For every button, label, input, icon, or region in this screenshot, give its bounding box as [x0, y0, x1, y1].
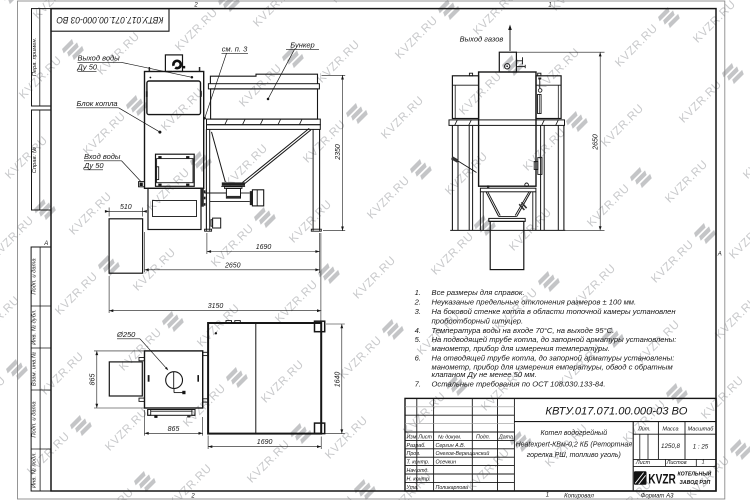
svg-text:Ду 50: Ду 50 [77, 63, 98, 72]
svg-text:Лит.: Лит. [637, 427, 651, 433]
svg-text:Т. контр.: Т. контр. [407, 460, 430, 466]
svg-text:2: 2 [193, 3, 198, 9]
svg-text:Все размеры для справок.: Все размеры для справок. [432, 288, 525, 297]
svg-text:горелка РШ, топливо уголь): горелка РШ, топливо уголь) [527, 452, 621, 459]
svg-text:2650: 2650 [593, 134, 600, 151]
svg-text:1250,8: 1250,8 [661, 443, 680, 450]
svg-text:3150: 3150 [208, 303, 224, 310]
svg-text:Лист: Лист [417, 434, 432, 440]
svg-text:КОТЕЛЬНЫЙ: КОТЕЛЬНЫЙ [678, 470, 712, 478]
svg-text:865: 865 [168, 426, 180, 433]
svg-text:510: 510 [120, 204, 132, 211]
svg-text:Пров.: Пров. [407, 451, 421, 457]
svg-text:Остальные требования по ОСТ 10: Остальные требования по ОСТ 108.030.133-… [432, 379, 606, 388]
svg-text:№ докум.: № докум. [438, 434, 461, 440]
svg-text:2350: 2350 [335, 144, 342, 161]
svg-text:Неуказаные предельные отклонен: Неуказаные предельные отклонения размеро… [432, 297, 637, 306]
svg-text:4.: 4. [415, 326, 421, 335]
svg-text:КВТУ.017.071.00.000-03 ВО: КВТУ.017.071.00.000-03 ВО [545, 406, 688, 418]
svg-text:7.: 7. [415, 379, 421, 388]
svg-text:1690: 1690 [257, 439, 273, 446]
svg-text:см. п. 3: см. п. 3 [222, 45, 248, 54]
svg-text:1: 1 [548, 3, 551, 9]
svg-text:6.: 6. [415, 353, 421, 362]
svg-text:Перв. примен.: Перв. примен. [32, 38, 38, 77]
svg-text:3.: 3. [415, 307, 421, 316]
svg-text:КВТУ.017.071.00.000-03 ВО: КВТУ.017.071.00.000-03 ВО [57, 15, 164, 25]
svg-text:Инв. № подл.: Инв. № подл. [32, 452, 38, 488]
svg-text:Ду 50: Ду 50 [83, 161, 104, 170]
svg-text:Температура воды на входе 70°С: Температура воды на входе 70°С, на выход… [432, 326, 615, 335]
svg-text:Разраб.: Разраб. [407, 443, 426, 449]
svg-text:Утв.: Утв. [407, 485, 419, 491]
svg-text:А: А [43, 241, 48, 247]
svg-text:KVZR: KVZR [648, 471, 676, 486]
svg-text:Формат А3: Формат А3 [641, 494, 674, 500]
svg-text:Масса: Масса [662, 427, 678, 433]
svg-text:Н. контр.: Н. контр. [407, 476, 431, 482]
svg-text:Масштаб: Масштаб [688, 427, 715, 433]
svg-text:1.: 1. [415, 288, 421, 297]
svg-text:Котел водогрейный: Котел водогрейный [541, 429, 608, 437]
svg-text:Выход газов: Выход газов [460, 35, 504, 44]
svg-text:Нач.отд.: Нач.отд. [407, 468, 429, 474]
svg-text:Блок котла: Блок котла [77, 99, 118, 108]
svg-text:Сергин А.В.: Сергин А.В. [436, 443, 466, 449]
svg-text:Изм.: Изм. [407, 434, 418, 440]
svg-text:Листов: Листов [666, 460, 687, 466]
svg-text:Справ. №: Справ. № [32, 147, 38, 173]
svg-text:1640: 1640 [334, 372, 341, 388]
svg-text:Подп. и дата: Подп. и дата [32, 401, 38, 438]
svg-text:пробоотборный штуцер.: пробоотборный штуцер. [432, 316, 524, 325]
svg-text:Инв. № дубл.: Инв. № дубл. [32, 309, 38, 345]
svg-text:Осечкин: Осечкин [436, 460, 457, 466]
svg-text:На боковой стенке котла в обла: На боковой стенке котла в области топочн… [432, 307, 677, 316]
svg-text:1: 1 [702, 460, 705, 466]
svg-text:Бункер: Бункер [290, 41, 314, 50]
svg-text:клапаном Ду не менее 50 мм.: клапаном Ду не менее 50 мм. [432, 370, 537, 379]
svg-text:Подп.: Подп. [476, 434, 490, 440]
svg-text:Копировал: Копировал [564, 494, 594, 500]
svg-text:На подводящей трубе котла, до: На подводящей трубе котла, до запорной а… [432, 335, 677, 344]
svg-text:Heatexpert-КВм-0,2 КБ (Ретортн: Heatexpert-КВм-0,2 КБ (Ретортная [516, 442, 633, 449]
svg-text:1690: 1690 [256, 244, 272, 251]
svg-text:ЗАВОД РЭП: ЗАВОД РЭП [680, 480, 711, 486]
svg-text:Взам. инв.№: Взам. инв.№ [32, 352, 38, 386]
svg-text:Поликарпова: Поликарпова [436, 485, 469, 491]
svg-text:А: А [717, 252, 722, 258]
svg-text:Выход воды: Выход воды [78, 54, 121, 63]
svg-text:манометр, прибор для измерения: манометр, прибор для измерения температу… [432, 344, 610, 353]
svg-text:Онегов-Верещинский: Онегов-Верещинский [436, 450, 490, 457]
svg-text:2: 2 [190, 494, 195, 500]
svg-text:Вход воды: Вход воды [84, 152, 121, 161]
svg-text:2650: 2650 [224, 262, 241, 269]
svg-text:Подп. и дата: Подп. и дата [32, 258, 38, 295]
svg-text:865: 865 [89, 374, 96, 386]
svg-text:1: 1 [546, 493, 549, 499]
svg-text:2.: 2. [414, 297, 421, 306]
svg-text:Ø250: Ø250 [116, 330, 136, 339]
svg-text:5.: 5. [415, 335, 421, 344]
svg-text:На отводящей трубе котла, до з: На отводящей трубе котла, до запорной ар… [432, 353, 675, 362]
svg-text:1 : 25: 1 : 25 [693, 443, 709, 450]
svg-text:Лист: Лист [635, 460, 651, 466]
svg-text:Дата: Дата [498, 434, 513, 440]
